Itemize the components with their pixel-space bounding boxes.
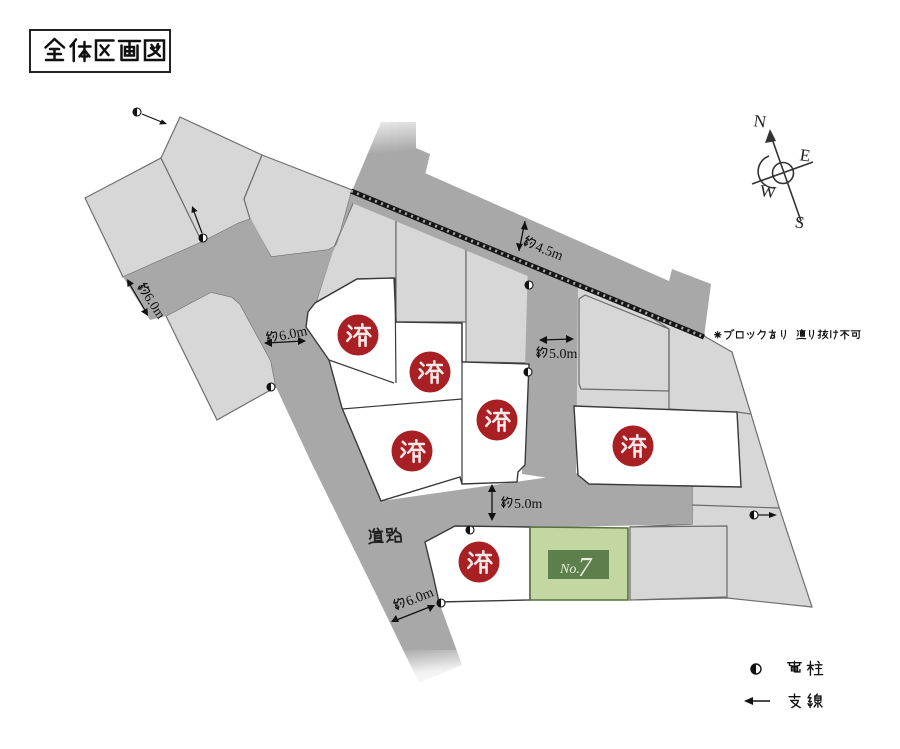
svg-text:No.: No. [559, 562, 580, 577]
svg-text:N: N [753, 111, 768, 132]
svg-text:7: 7 [578, 552, 593, 582]
svg-text:5.0m: 5.0m [549, 347, 578, 362]
svg-text:5.0m: 5.0m [514, 497, 543, 512]
